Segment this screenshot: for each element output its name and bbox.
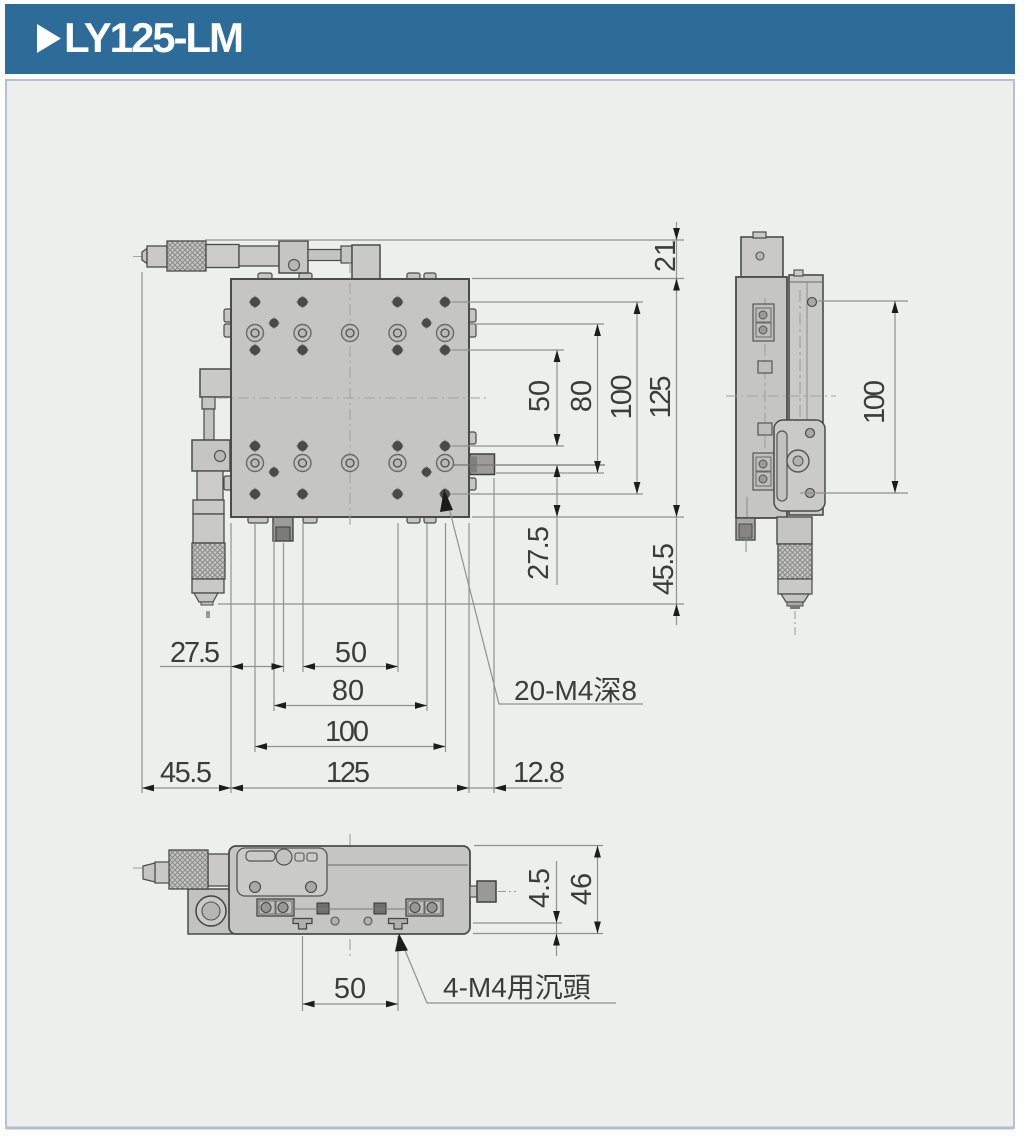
- svg-text:4-M4用沉頭: 4-M4用沉頭: [443, 972, 591, 1003]
- svg-text:45.5: 45.5: [160, 757, 212, 789]
- svg-text:27.5: 27.5: [170, 637, 220, 669]
- svg-text:4.5: 4.5: [524, 868, 556, 908]
- svg-text:12.8: 12.8: [513, 757, 565, 789]
- svg-text:100: 100: [859, 380, 891, 424]
- svg-text:20-M4深8: 20-M4深8: [514, 675, 637, 706]
- svg-text:125: 125: [645, 376, 677, 419]
- svg-text:50: 50: [524, 380, 556, 412]
- svg-text:100: 100: [606, 375, 638, 420]
- svg-text:50: 50: [335, 637, 367, 669]
- svg-text:LY125-LM: LY125-LM: [64, 14, 244, 61]
- svg-text:125: 125: [326, 757, 370, 789]
- svg-text:80: 80: [332, 675, 364, 707]
- svg-text:45.5: 45.5: [648, 543, 680, 595]
- svg-text:21: 21: [650, 240, 682, 272]
- svg-text:27.5: 27.5: [523, 526, 555, 580]
- svg-text:46: 46: [566, 873, 598, 905]
- svg-text:100: 100: [325, 716, 369, 748]
- svg-text:80: 80: [566, 380, 598, 412]
- svg-text:50: 50: [334, 973, 366, 1005]
